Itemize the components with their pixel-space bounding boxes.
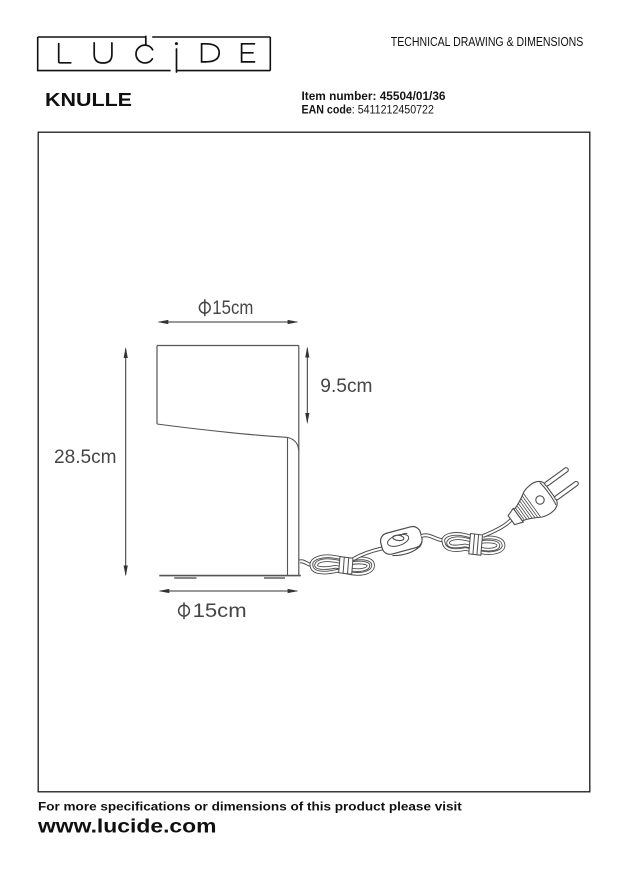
svg-text:9.5cm: 9.5cm: [320, 375, 372, 397]
svg-text:For more specifications or dim: For more specifications or dimensions of…: [38, 800, 462, 814]
svg-text:28.5cm: 28.5cm: [54, 446, 117, 468]
svg-text:Item number: 45504/01/36: Item number: 45504/01/36: [302, 89, 446, 103]
svg-text:15cm: 15cm: [193, 600, 247, 622]
svg-text:TECHNICAL DRAWING & DIMENSIONS: TECHNICAL DRAWING & DIMENSIONS: [391, 35, 584, 49]
svg-text:www.lucide.com: www.lucide.com: [37, 816, 217, 838]
svg-text:15cm: 15cm: [212, 297, 253, 319]
svg-text:EAN code: 5411212450722: EAN code: 5411212450722: [302, 103, 435, 117]
svg-text:KNULLE: KNULLE: [45, 89, 132, 110]
